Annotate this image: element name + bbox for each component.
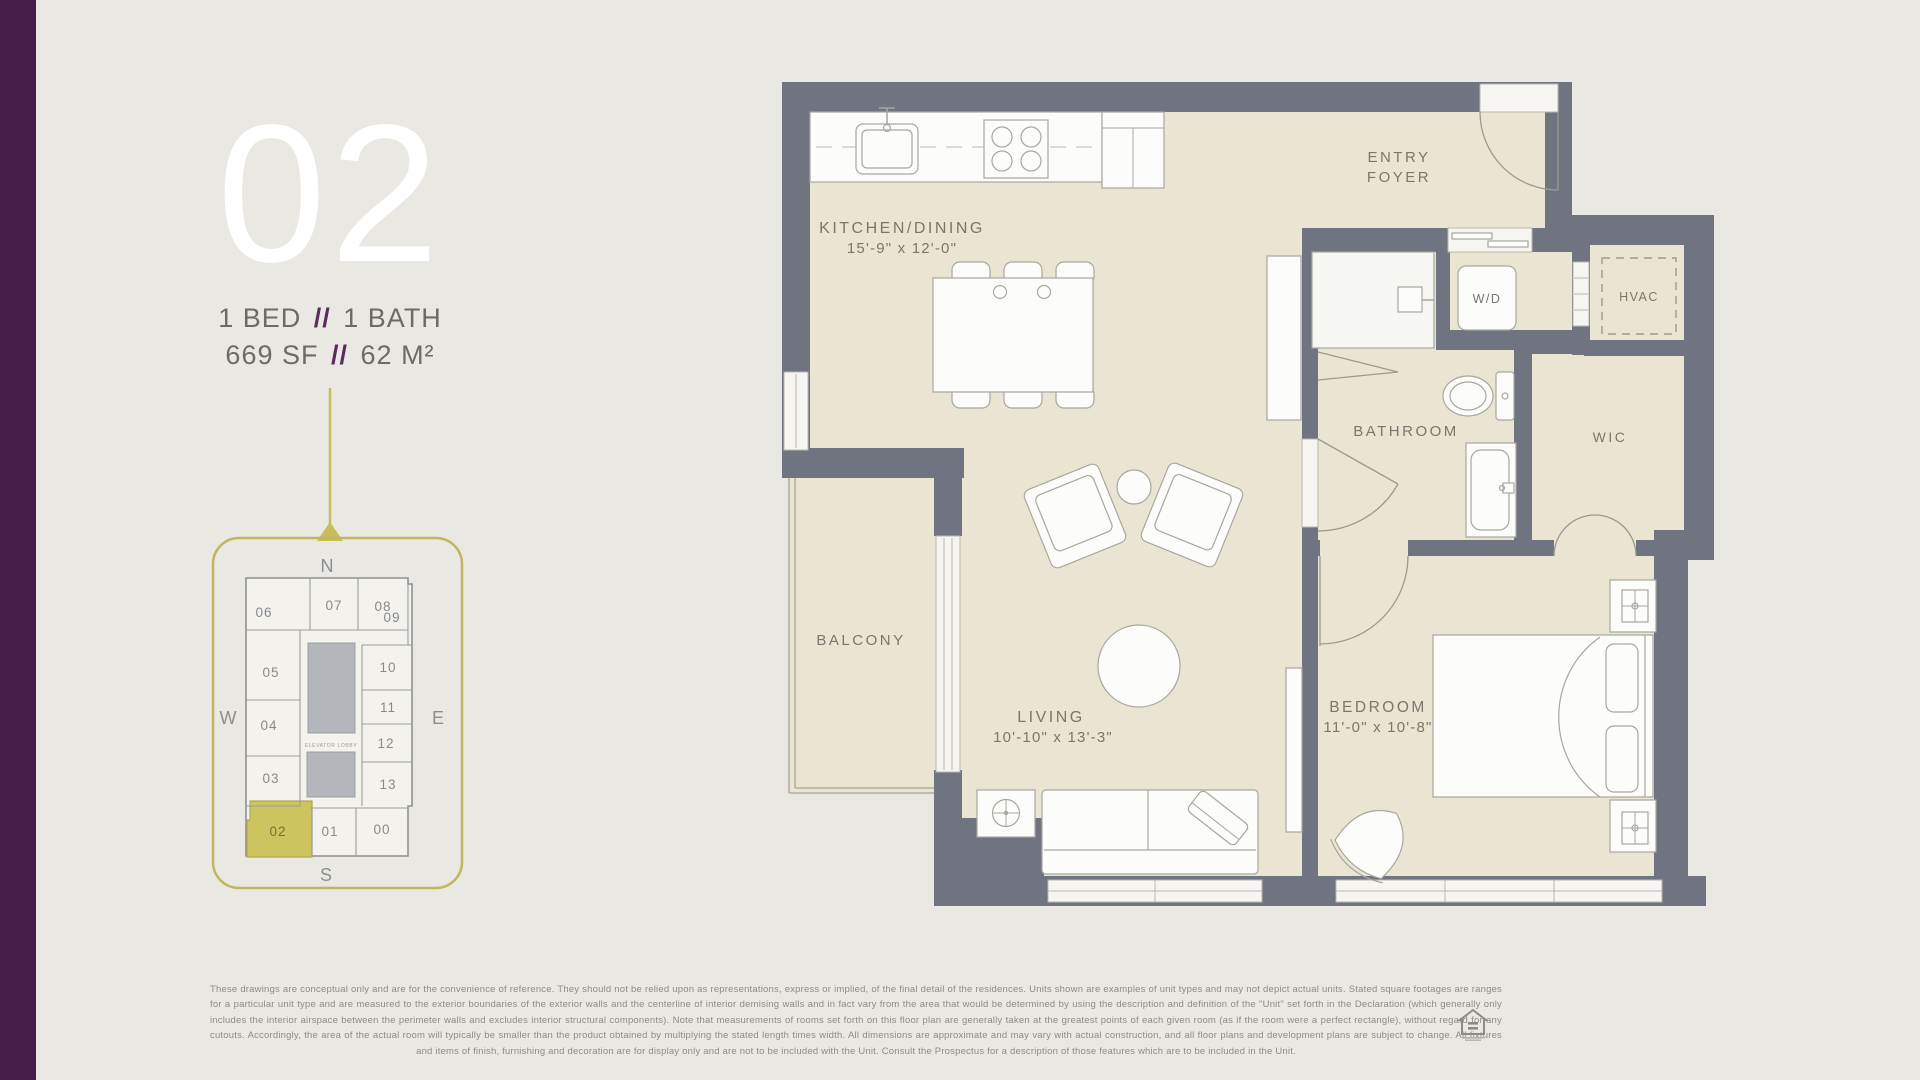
pillow-bottom (1606, 726, 1638, 792)
compass-n: N (321, 556, 334, 576)
tv-console (1286, 668, 1302, 832)
keyplan-unit-07: 07 (325, 598, 342, 613)
compass-s: S (320, 865, 332, 885)
nightstand-bottom (1610, 800, 1656, 852)
elevator-lobby-label: ELEVATOR LOBBY (305, 743, 357, 749)
room-label-bedroom: BEDROOM (1329, 699, 1427, 716)
keyplan-unit-02: 02 (269, 824, 286, 839)
keyplan-unit-00: 00 (373, 822, 390, 837)
room-dims-kitchen: 15'-9" x 12'-0" (847, 240, 957, 257)
keyplan-unit-01: 01 (321, 824, 338, 839)
bed (1433, 635, 1653, 797)
keyplan-callout (317, 388, 343, 541)
keyplan-unit-09: 09 (383, 610, 400, 625)
room-label-kitchen: KITCHEN/DINING (819, 220, 985, 237)
sofa (1042, 789, 1258, 874)
floorplan-brochure-page: 02 1 BED // 1 BATH 669 SF // 62 M² N W E… (0, 0, 1920, 1080)
room-dims-living: 10'-10" x 13'-3" (993, 729, 1113, 746)
room-label-hvac: HVAC (1619, 290, 1659, 304)
keyplan-core-block-lower (307, 752, 355, 797)
dining-table-set (933, 262, 1094, 408)
floorplan: KITCHEN/DINING 15'-9" x 12'-0" ENTRY FOY… (782, 82, 1714, 906)
hvac-louver-door (1573, 262, 1589, 326)
bedroom-window (1336, 880, 1662, 902)
room-label-wic: WIC (1593, 429, 1628, 445)
kitchen-window (784, 372, 808, 450)
pantry-cabinet (1267, 256, 1301, 420)
compass-w: W (220, 708, 237, 728)
shower-shelf (1398, 287, 1422, 312)
room-label-bathroom: BATHROOM (1353, 423, 1459, 440)
room-label-wd: W/D (1473, 292, 1502, 306)
kitchen-counter (810, 112, 1102, 182)
plan-graphics: N W E S ELEVATOR LOBBY 06 07 08 (0, 0, 1920, 1080)
bathroom-door-opening (1302, 439, 1318, 527)
shower (1312, 252, 1434, 348)
room-label-balcony: BALCONY (816, 632, 905, 649)
wd-bifold-doors (1448, 228, 1532, 252)
side-table-with-lamp (977, 790, 1035, 837)
keyplan-unit-05: 05 (262, 665, 279, 680)
keyplan-unit-12: 12 (377, 736, 394, 751)
keyplan: N W E S ELEVATOR LOBBY 06 07 08 (213, 538, 462, 888)
keyplan-unit-10: 10 (379, 660, 396, 675)
room-label-entry-line2: FOYER (1367, 169, 1431, 186)
vanity-sink (1466, 443, 1516, 537)
compass-e: E (432, 708, 444, 728)
equal-housing-logo (1458, 1008, 1488, 1042)
keyplan-core-block-upper (308, 643, 355, 733)
keyplan-unit-06: 06 (255, 605, 272, 620)
fridge (1102, 112, 1164, 188)
stove (984, 120, 1048, 178)
room-label-entry-line1: ENTRY (1367, 149, 1430, 166)
nightstand-top (1610, 580, 1656, 632)
toilet (1443, 372, 1514, 420)
keyplan-unit-11: 11 (380, 700, 396, 715)
legal-disclaimer: These drawings are conceptual only and a… (210, 982, 1502, 1059)
entry-door-opening (1480, 84, 1558, 112)
keyplan-unit-03: 03 (262, 771, 279, 786)
room-label-living: LIVING (1017, 709, 1084, 726)
round-rug (1098, 625, 1180, 707)
keyplan-unit-04: 04 (260, 718, 277, 733)
room-dims-bedroom: 11'-0" x 10'-8" (1323, 719, 1432, 736)
keyplan-unit-13: 13 (379, 777, 396, 792)
balcony-sliding-door (936, 536, 960, 772)
pillow-top (1606, 644, 1638, 712)
round-side-table (1117, 470, 1151, 504)
living-window (1048, 880, 1262, 902)
